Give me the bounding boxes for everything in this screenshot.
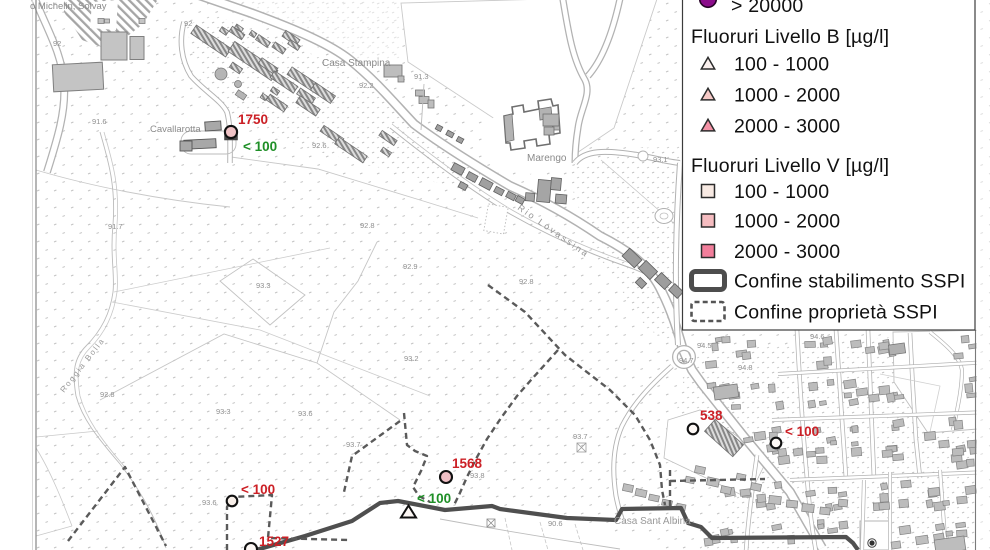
svg-text:> 20000: > 20000 xyxy=(731,0,803,17)
svg-text:93.6: 93.6 xyxy=(202,498,217,507)
svg-text:94.5: 94.5 xyxy=(697,341,712,350)
svg-text:94.7: 94.7 xyxy=(679,356,694,365)
svg-text:Casa Sant Albina: Casa Sant Albina xyxy=(614,516,691,527)
svg-text:91.3: 91.3 xyxy=(414,72,429,81)
svg-text:93.3: 93.3 xyxy=(256,281,271,290)
svg-text:1568: 1568 xyxy=(452,456,483,471)
svg-text:90.6: 90.6 xyxy=(548,519,563,528)
svg-text:1000 - 2000: 1000 - 2000 xyxy=(734,210,840,232)
svg-text:Fluoruri Livello B [µg/l]: Fluoruri Livello B [µg/l] xyxy=(691,26,889,48)
svg-text:< 100: < 100 xyxy=(417,491,451,506)
svg-text:100 - 1000: 100 - 1000 xyxy=(734,54,829,76)
svg-text:92.8: 92.8 xyxy=(360,221,375,230)
svg-text:Cavallarotta: Cavallarotta xyxy=(150,124,201,135)
svg-text:93.7: 93.7 xyxy=(573,432,588,441)
svg-text:Confine proprietà SSPI: Confine proprietà SSPI xyxy=(734,302,938,324)
svg-text:93.3: 93.3 xyxy=(216,407,231,416)
svg-text:94.6: 94.6 xyxy=(810,332,825,341)
svg-text:538: 538 xyxy=(700,408,723,423)
svg-text:1000 - 2000: 1000 - 2000 xyxy=(734,84,840,106)
svg-text:1750: 1750 xyxy=(238,112,268,127)
svg-text:94.8: 94.8 xyxy=(738,363,753,372)
svg-text:o Michelin, Solvay: o Michelin, Solvay xyxy=(30,1,107,12)
svg-text:92.9: 92.9 xyxy=(403,262,418,271)
svg-text:Marengo: Marengo xyxy=(527,153,567,164)
svg-text:93.8: 93.8 xyxy=(470,471,485,480)
svg-text:Confine stabilimento SSPI: Confine stabilimento SSPI xyxy=(734,271,966,293)
svg-text:92: 92 xyxy=(184,19,192,28)
svg-text:91.7: 91.7 xyxy=(108,222,123,231)
svg-text:2000 - 3000: 2000 - 3000 xyxy=(734,241,840,263)
svg-text:< 100: < 100 xyxy=(243,139,277,154)
svg-text:91.6: 91.6 xyxy=(92,117,107,126)
svg-text:Fluoruri Livello V [µg/l]: Fluoruri Livello V [µg/l] xyxy=(691,155,889,177)
svg-text:< 100: < 100 xyxy=(241,482,275,497)
svg-text:92.2: 92.2 xyxy=(359,81,374,90)
svg-text:100 - 1000: 100 - 1000 xyxy=(734,181,829,203)
svg-text:92.8: 92.8 xyxy=(519,277,534,286)
svg-text:2000 - 3000: 2000 - 3000 xyxy=(734,115,840,137)
svg-text:93.7: 93.7 xyxy=(346,440,361,449)
svg-text:Casa Stampina: Casa Stampina xyxy=(322,58,391,69)
svg-text:92: 92 xyxy=(53,39,61,48)
svg-text:93.1: 93.1 xyxy=(653,155,668,164)
svg-text:92.8: 92.8 xyxy=(100,390,115,399)
svg-text:< 100: < 100 xyxy=(785,424,819,439)
svg-text:1527: 1527 xyxy=(259,534,289,549)
svg-text:92.6: 92.6 xyxy=(312,141,327,150)
svg-text:93.6: 93.6 xyxy=(298,409,313,418)
svg-text:93.2: 93.2 xyxy=(404,354,419,363)
